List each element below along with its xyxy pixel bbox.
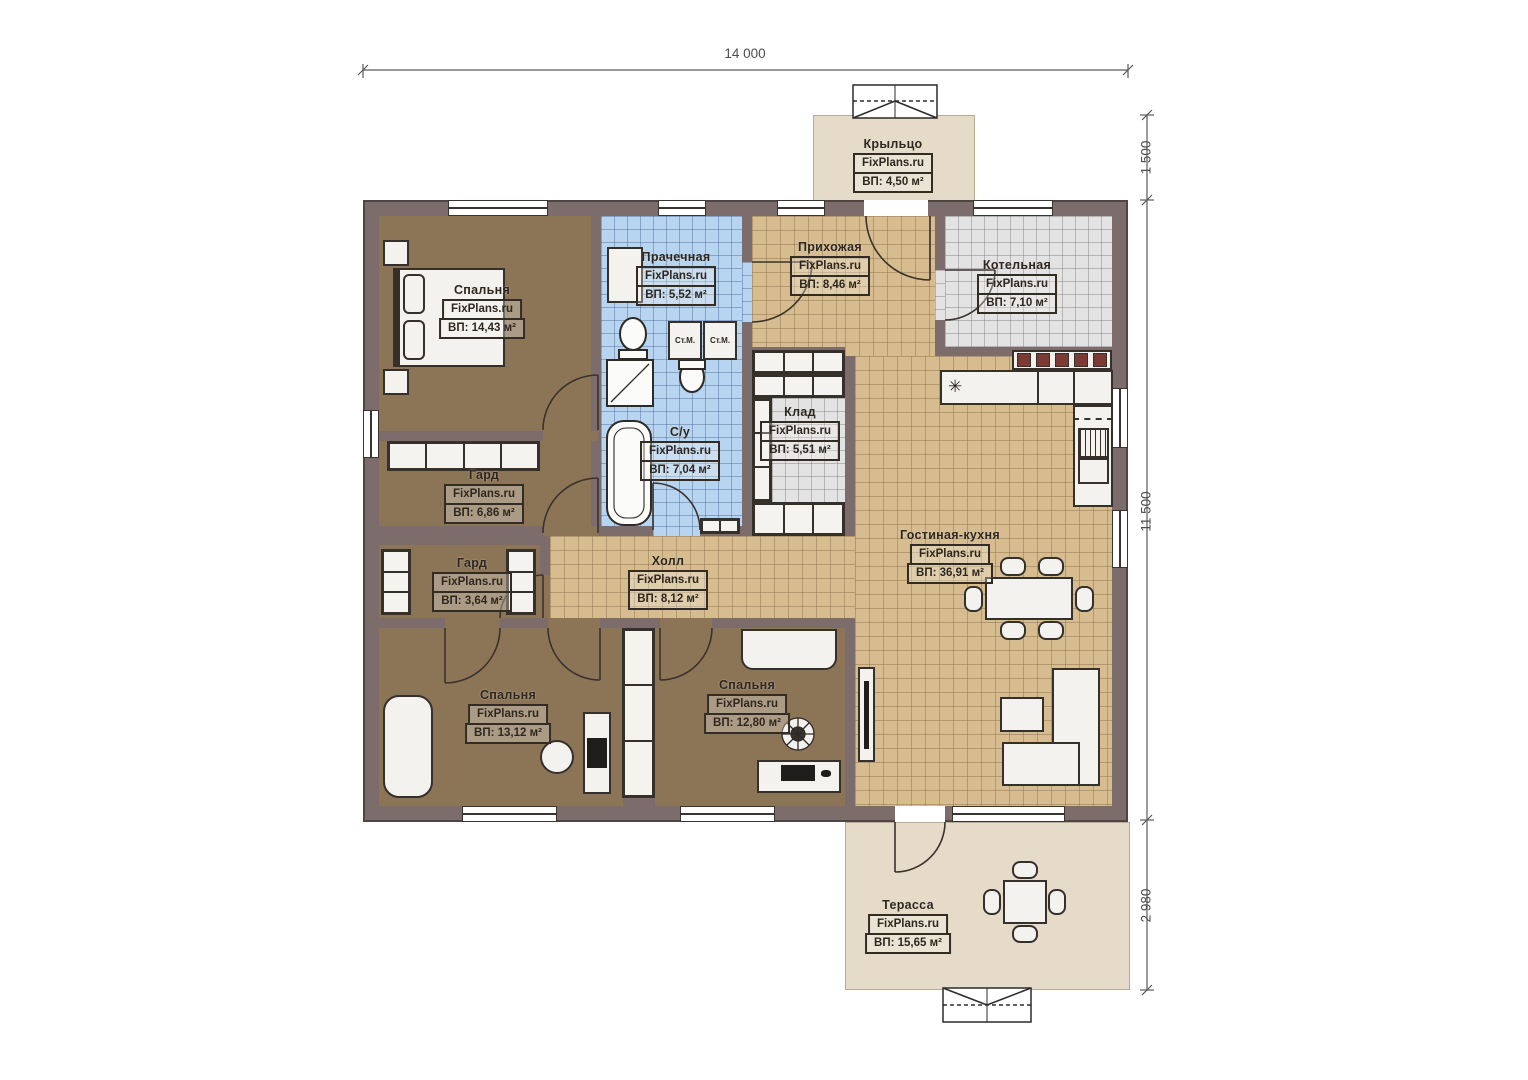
opening-bedroom3 <box>660 618 712 628</box>
window-bedroom2 <box>462 806 557 822</box>
mouse <box>821 770 831 777</box>
coffee-table <box>1000 697 1044 732</box>
dining-chair <box>1038 557 1064 576</box>
room-name: Гард <box>444 468 524 482</box>
watermark: FixPlans.ru <box>468 704 548 725</box>
room-name: Терасса <box>865 898 951 912</box>
terrace-stairs-icon <box>943 988 1031 1022</box>
window-bedroom1 <box>448 200 548 216</box>
dimension-total-width: 14 000 <box>695 46 795 61</box>
opening-bedroom2 <box>445 618 500 628</box>
watermark: FixPlans.ru <box>868 914 948 935</box>
terrace-door-gap <box>895 806 945 822</box>
dimension-house-depth: 11 500 <box>1139 472 1154 552</box>
room-name: Гард <box>432 556 512 570</box>
terrace-table <box>1003 880 1047 924</box>
room-name: Клад <box>760 405 840 419</box>
window-wardrobe1 <box>363 410 379 458</box>
watermark: FixPlans.ru <box>910 544 990 565</box>
room-label-wardrobe1: Гард FixPlans.ru ВП: 6,86 м² <box>444 468 524 524</box>
kitchen-upper-cabinets <box>1012 350 1112 370</box>
pillow <box>403 320 425 360</box>
room-label-living-kitchen: Гостиная-кухня FixPlans.ru ВП: 36,91 м² <box>900 528 1000 584</box>
floor-plan-canvas: 14 000 1 500 11 500 2 980 <box>0 0 1528 1080</box>
watermark: FixPlans.ru <box>790 256 870 277</box>
room-name: Прихожая <box>790 240 870 254</box>
room-name: Холл <box>628 554 708 568</box>
sofa <box>741 629 837 670</box>
room-area: ВП: 8,46 м² <box>790 275 870 296</box>
room-name: Спальня <box>439 283 525 297</box>
terrace-chair <box>1012 861 1038 879</box>
room-label-wardrobe2: Гард FixPlans.ru ВП: 3,64 м² <box>432 556 512 612</box>
washing-machine: Ст.М. <box>703 321 737 360</box>
room-area: ВП: 36,91 м² <box>907 563 993 584</box>
room-name: Крыльцо <box>853 137 933 151</box>
room-area: ВП: 6,86 м² <box>444 503 524 524</box>
room-area: ВП: 5,52 м² <box>636 285 716 306</box>
room-area: ВП: 4,50 м² <box>853 172 933 193</box>
tv-screen <box>864 681 869 749</box>
nightstand <box>383 240 409 266</box>
room-label-terrace: Терасса FixPlans.ru ВП: 15,65 м² <box>865 898 951 954</box>
dining-chair <box>1038 621 1064 640</box>
room-label-hall: Холл FixPlans.ru ВП: 8,12 м² <box>628 554 708 610</box>
room-area: ВП: 7,04 м² <box>640 460 720 481</box>
dimension-porch-depth: 1 500 <box>1139 118 1154 198</box>
opening-wardrobe-strip <box>548 618 600 628</box>
dimension-terrace-depth: 2 980 <box>1139 866 1154 946</box>
fridge <box>1078 428 1109 458</box>
room-area: ВП: 5,51 м² <box>760 440 840 461</box>
room-name: Прачечная <box>636 250 716 264</box>
corner-sofa-seat <box>1002 742 1080 786</box>
room-label-bedroom3: Спальня FixPlans.ru ВП: 12,80 м² <box>704 678 790 734</box>
watermark: FixPlans.ru <box>853 153 933 174</box>
pillow <box>403 274 425 314</box>
stove <box>1037 370 1075 405</box>
window-laundry <box>658 200 706 216</box>
freezer-symbol: ✳ <box>948 377 962 397</box>
watermark: FixPlans.ru <box>444 484 524 505</box>
window-living-slider <box>952 806 1065 822</box>
opening-wardrobe1 <box>543 526 598 536</box>
watermark: FixPlans.ru <box>707 694 787 715</box>
window-entry-hall <box>777 200 825 216</box>
room-area: ВП: 15,65 м² <box>865 933 951 954</box>
sofa <box>383 695 433 798</box>
room-label-bedroom1: Спальня FixPlans.ru ВП: 14,43 м² <box>439 283 525 339</box>
entry-door-gap <box>864 200 928 216</box>
room-area: ВП: 13,12 м² <box>465 723 551 744</box>
opening-bathroom <box>653 526 700 536</box>
window-living-right-2 <box>1112 510 1128 568</box>
room-label-storage: Клад FixPlans.ru ВП: 5,51 м² <box>760 405 840 461</box>
watermark: FixPlans.ru <box>432 572 512 593</box>
opening-bedroom1 <box>543 431 598 441</box>
room-name: Спальня <box>704 678 790 692</box>
wardrobe2-shelves-left <box>381 549 411 615</box>
room-name: Гостиная-кухня <box>900 528 1000 542</box>
laptop <box>781 765 815 781</box>
watermark: FixPlans.ru <box>442 299 522 320</box>
washer-label: Ст.М. <box>705 323 735 358</box>
watermark: FixPlans.ru <box>636 266 716 287</box>
storage-shelves-bottom <box>752 502 845 536</box>
room-area: ВП: 8,12 м² <box>628 589 708 610</box>
watermark: FixPlans.ru <box>628 570 708 591</box>
watermark: FixPlans.ru <box>640 441 720 462</box>
room-label-laundry: Прачечная FixPlans.ru ВП: 5,52 м² <box>636 250 716 306</box>
terrace-chair <box>1012 925 1038 943</box>
porch-stairs-icon <box>853 85 937 118</box>
bathroom-cabinet <box>700 518 740 534</box>
washer-label: Ст.М. <box>670 323 700 358</box>
window-boiler <box>973 200 1053 216</box>
nightstand <box>383 369 409 395</box>
dining-chair <box>964 586 983 612</box>
window-living-right-1 <box>1112 388 1128 448</box>
storage-shelves-top1 <box>752 350 845 374</box>
room-name: С/у <box>640 425 720 439</box>
terrace-chair <box>1048 889 1066 915</box>
room-name: Спальня <box>465 688 551 702</box>
bedroom-wardrobe-cabinet <box>622 628 655 798</box>
room-area: ВП: 7,10 м² <box>977 293 1057 314</box>
wardrobe1-shelves <box>387 441 540 471</box>
dining-chair <box>1000 557 1026 576</box>
dining-chair <box>1000 621 1026 640</box>
monitor <box>587 738 607 768</box>
room-label-boiler-room: Котельная FixPlans.ru ВП: 7,10 м² <box>977 258 1057 314</box>
watermark: FixPlans.ru <box>760 421 840 442</box>
terrace-chair <box>983 889 1001 915</box>
dishwasher-dashed-line <box>1073 418 1113 420</box>
room-area: ВП: 3,64 м² <box>432 591 512 612</box>
opening-wardrobe2 <box>540 575 550 618</box>
room-label-bedroom2: Спальня FixPlans.ru ВП: 13,12 м² <box>465 688 551 744</box>
desk-chair <box>540 740 574 774</box>
kitchen-counter <box>940 370 1113 405</box>
watermark: FixPlans.ru <box>977 274 1057 295</box>
opening-laundry <box>742 262 752 322</box>
storage-shelves-top2 <box>752 374 845 398</box>
freezer-drawer <box>1078 458 1109 484</box>
room-label-bathroom: С/у FixPlans.ru ВП: 7,04 м² <box>640 425 720 481</box>
opening-boiler <box>935 270 945 320</box>
room-area: ВП: 14,43 м² <box>439 318 525 339</box>
washing-machine: Ст.М. <box>668 321 702 360</box>
room-label-porch: Крыльцо FixPlans.ru ВП: 4,50 м² <box>853 137 933 193</box>
room-label-entry-hall: Прихожая FixPlans.ru ВП: 8,46 м² <box>790 240 870 296</box>
room-area: ВП: 12,80 м² <box>704 713 790 734</box>
room-name: Котельная <box>977 258 1057 272</box>
dining-chair <box>1075 586 1094 612</box>
window-bedroom3 <box>680 806 775 822</box>
